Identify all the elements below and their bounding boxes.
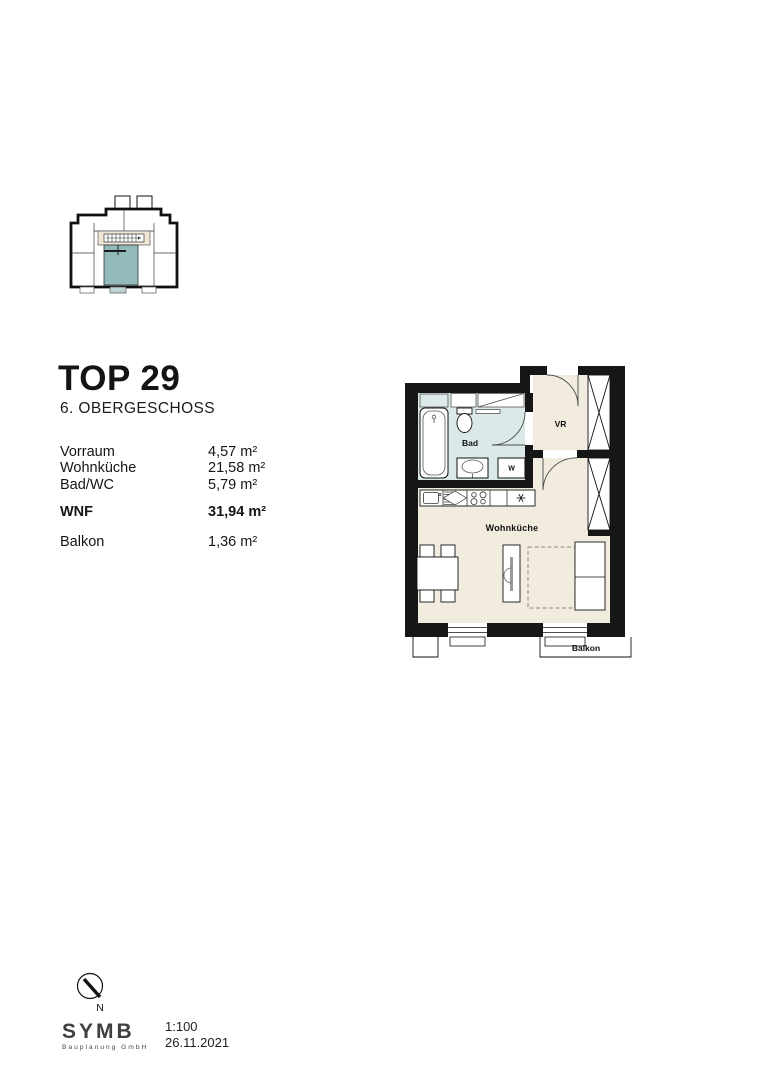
washing-machine-label: W [508, 466, 515, 473]
room-label-balkon: Balkon [572, 643, 600, 653]
room-name: Balkon [60, 534, 208, 550]
chair [420, 590, 434, 602]
room-area: 5,79 m² [208, 477, 257, 493]
total-area: 31,94 m² [208, 504, 266, 520]
bath-cabinet [451, 394, 476, 408]
bath-cabinet-diagonal [478, 394, 524, 408]
neighbor-balcony-outline [413, 637, 438, 657]
plan-date: 26.11.2021 [165, 1035, 229, 1051]
key-plan-balcony-bottom [80, 287, 94, 293]
plan-scale: 1:100 [165, 1019, 229, 1035]
area-balcony-row: Balkon 1,36 m² [60, 534, 290, 550]
room-area: 21,58 m² [208, 460, 265, 476]
key-plan [58, 193, 190, 301]
chair [441, 590, 455, 602]
room-area: 4,57 m² [208, 444, 257, 460]
chair [441, 545, 455, 557]
area-total-row: WNF 31,94 m² [60, 504, 290, 520]
area-row: Bad/WC 5,79 m² [60, 477, 290, 493]
room-label-wohnkueche: Wohnküche [486, 523, 539, 533]
stair-icon [104, 234, 144, 242]
couch [575, 542, 605, 610]
page-title: TOP 29 [58, 359, 180, 399]
towel-rail [476, 410, 500, 414]
sideboard [503, 545, 520, 602]
washing-machine-icon: W [498, 458, 525, 478]
area-row: Vorraum 4,57 m² [60, 444, 290, 460]
room-name: Vorraum [60, 444, 208, 460]
kitchen-counter [420, 490, 535, 506]
area-table: Vorraum 4,57 m² Wohnküche 21,58 m² Bad/W… [60, 444, 290, 550]
washbasin-icon [457, 458, 488, 478]
living-floor [533, 458, 588, 488]
bathtub-icon [420, 408, 448, 478]
company-logo: SYMB Bauplanung GmbH [62, 1021, 148, 1051]
kitchen-sink-icon [424, 493, 442, 504]
north-arrow-icon: N [70, 966, 120, 1016]
floor-plan: W [395, 350, 660, 680]
room-name: Wohnküche [60, 460, 208, 476]
chair [420, 545, 434, 557]
area-row: Wohnküche 21,58 m² [60, 460, 290, 476]
north-label: N [96, 1002, 104, 1014]
plan-sheet: TOP 29 6. OBERGESCHOSS Vorraum 4,57 m² W… [0, 0, 764, 1080]
scale-date-block: 1:100 26.11.2021 [165, 1019, 229, 1051]
room-area: 1,36 m² [208, 534, 257, 550]
key-plan-balcony-bottom [142, 287, 156, 293]
vestibule-floor [533, 375, 588, 450]
toilet-icon [457, 408, 472, 433]
room-name: Bad/WC [60, 477, 208, 493]
total-label: WNF [60, 504, 208, 520]
room-label-vr: VR [555, 419, 567, 429]
logo-text: SYMB [62, 1021, 148, 1042]
room-label-bad: Bad [462, 438, 478, 448]
floor-subtitle: 6. OBERGESCHOSS [60, 400, 215, 418]
logo-subtext: Bauplanung GmbH [62, 1044, 148, 1051]
key-plan-unit-balcony [110, 287, 126, 293]
window [448, 623, 487, 646]
dining-table [417, 557, 458, 590]
